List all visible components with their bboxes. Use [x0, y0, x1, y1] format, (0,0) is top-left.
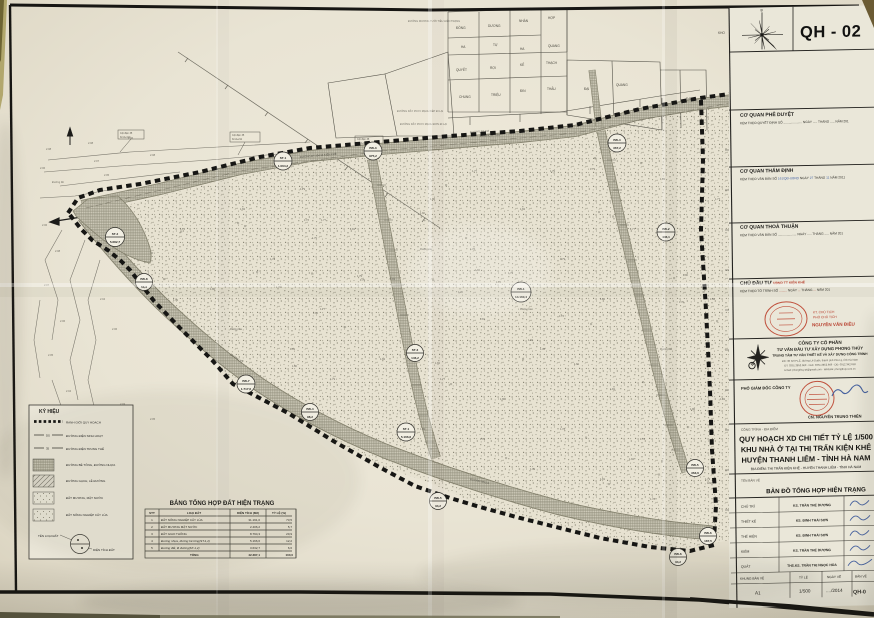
- svg-text:1.79: 1.79: [300, 187, 306, 191]
- svg-text:TỰ: TỰ: [493, 43, 498, 47]
- svg-text:1.81: 1.81: [600, 477, 606, 481]
- svg-text:1.77: 1.77: [630, 227, 636, 231]
- svg-text:363,6: 363,6: [691, 471, 699, 475]
- svg-text:BB-5: BB-5: [691, 463, 698, 467]
- svg-text:1.80: 1.80: [690, 407, 696, 411]
- svg-text:2.06: 2.06: [112, 327, 118, 331]
- svg-text:2.08: 2.08: [46, 147, 52, 151]
- svg-text:1.82: 1.82: [380, 357, 386, 361]
- svg-text:THẤU: THẤU: [547, 87, 556, 91]
- svg-text:ĐỒNG: ĐỒNG: [456, 25, 466, 30]
- svg-text:1.82: 1.82: [720, 397, 726, 401]
- svg-text:THẠCH: THẠCH: [546, 61, 558, 65]
- svg-text:1.77: 1.77: [320, 307, 326, 311]
- svg-text:1.79: 1.79: [173, 299, 178, 302]
- svg-text:1.79: 1.79: [705, 477, 711, 481]
- svg-text:1.83: 1.83: [420, 427, 426, 431]
- svg-text:THIẾT KẾ: THIẾT KẾ: [741, 518, 757, 523]
- svg-text:1.83: 1.83: [390, 277, 396, 281]
- svg-text:ST-3: ST-3: [412, 348, 419, 352]
- svg-text:BB-6: BB-6: [704, 531, 711, 535]
- svg-text:ST-1: ST-1: [280, 156, 287, 160]
- svg-text:QUANG: QUANG: [616, 83, 628, 87]
- svg-text:PHÓ CHỦ TỊCH: PHÓ CHỦ TỊCH: [813, 314, 837, 319]
- svg-text:1.79: 1.79: [560, 257, 566, 261]
- svg-text:1.79: 1.79: [360, 279, 365, 282]
- svg-text:TRIỆU: TRIỆU: [491, 92, 501, 97]
- svg-text:5.166,6: 5.166,6: [401, 435, 412, 439]
- svg-text:2.08: 2.08: [55, 249, 61, 253]
- svg-text:BB-4: BB-4: [306, 407, 313, 411]
- svg-text:146,2: 146,2: [411, 356, 419, 360]
- svg-text:1.79: 1.79: [590, 167, 596, 171]
- svg-text:DƯƠNG: DƯƠNG: [488, 24, 501, 28]
- svg-text:1.78: 1.78: [270, 257, 276, 261]
- svg-text:2.04: 2.04: [66, 389, 72, 393]
- svg-text:2.08: 2.08: [150, 153, 156, 157]
- svg-text:CƠ QUAN THOẢ THUẬN: CƠ QUAN THOẢ THUẬN: [740, 223, 799, 231]
- svg-text:KS. ĐINH THÁI SƠN: KS. ĐINH THÁI SƠN: [796, 532, 829, 538]
- svg-text:975,2: 975,2: [369, 154, 377, 158]
- svg-text:1.79: 1.79: [330, 377, 336, 381]
- svg-text:KHO: KHO: [718, 31, 725, 35]
- svg-text:2.05: 2.05: [48, 353, 54, 357]
- svg-text:1.79: 1.79: [530, 467, 536, 471]
- svg-text:1.81: 1.81: [610, 387, 616, 391]
- svg-text:QUYẾT: QUYẾT: [456, 67, 467, 72]
- svg-text:1.84: 1.84: [629, 458, 634, 461]
- svg-text:Ruộng lúa: Ruộng lúa: [230, 327, 242, 331]
- svg-text:Ruộng lúa: Ruộng lúa: [520, 307, 532, 311]
- svg-text:1.77: 1.77: [321, 219, 326, 222]
- svg-text:1.80: 1.80: [600, 297, 606, 301]
- svg-text:Cột điện 35: Cột điện 35: [232, 134, 245, 137]
- svg-text:1.73: 1.73: [559, 315, 564, 318]
- svg-text:2.04: 2.04: [100, 297, 106, 301]
- svg-text:Đường đê: Đường đê: [52, 180, 64, 184]
- svg-text:KT. CHỦ TỊCH: KT. CHỦ TỊCH: [813, 309, 835, 314]
- svg-text:CƠ QUAN THẨM ĐỊNH: CƠ QUAN THẨM ĐỊNH: [740, 167, 794, 175]
- svg-text:100,0: 100,0: [285, 553, 293, 557]
- svg-text:1.77: 1.77: [715, 197, 721, 201]
- svg-text:367,2: 367,2: [613, 146, 621, 150]
- svg-text:1.80: 1.80: [683, 274, 688, 277]
- svg-text:1.82: 1.82: [420, 212, 425, 215]
- svg-text:2.06: 2.06: [42, 223, 48, 227]
- svg-text:1.77: 1.77: [472, 170, 477, 173]
- svg-text:BB-7: BB-7: [242, 379, 249, 383]
- svg-text:BB-8: BB-8: [140, 277, 147, 281]
- svg-text:1.82: 1.82: [707, 482, 712, 485]
- svg-text:1.82: 1.82: [574, 363, 579, 366]
- svg-text:187,5: 187,5: [704, 539, 712, 543]
- svg-text:NGUYỄN VĂN ĐIỀU: NGUYỄN VĂN ĐIỀU: [812, 321, 856, 328]
- svg-text:CN. NGUYỄN TRUNG THIÊN: CN. NGUYỄN TRUNG THIÊN: [808, 413, 862, 419]
- svg-text:1.79: 1.79: [312, 237, 317, 240]
- svg-text:2.05: 2.05: [104, 173, 110, 177]
- svg-text:CHUNG: CHUNG: [459, 95, 471, 99]
- svg-text:1.78: 1.78: [640, 437, 646, 441]
- svg-text:1.78: 1.78: [560, 427, 566, 431]
- svg-text:1.79: 1.79: [357, 275, 362, 278]
- svg-text:2.07: 2.07: [94, 159, 100, 163]
- svg-text:NHÀN: NHÀN: [519, 19, 529, 23]
- svg-text:RỢI: RỢI: [490, 66, 496, 70]
- svg-text:ĐIN: ĐIN: [520, 89, 526, 93]
- svg-text:2.06: 2.06: [60, 319, 66, 323]
- svg-text:2.06: 2.06: [40, 166, 46, 170]
- svg-text:5.682,7: 5.682,7: [110, 240, 121, 244]
- svg-text:BB-4: BB-4: [613, 138, 620, 142]
- svg-text:PHÓ GIÁM ĐỐC CÔNG TY: PHÓ GIÁM ĐỐC CÔNG TY: [741, 385, 791, 391]
- svg-text:QUANG: QUANG: [548, 44, 560, 48]
- svg-text:KS. TRẦN THẾ DƯƠNG: KS. TRẦN THẾ DƯƠNG: [793, 502, 831, 508]
- svg-text:KS. TRẦN THẾ DƯƠNG: KS. TRẦN THẾ DƯƠNG: [793, 547, 831, 553]
- svg-text:1.81: 1.81: [290, 347, 296, 351]
- svg-text:THỂ HIỆN: THỂ HIỆN: [741, 533, 757, 538]
- svg-text:1.717,6: 1.717,6: [241, 387, 252, 391]
- svg-text:CÔNG TRÌNH - ĐỊA ĐIỂM: CÔNG TRÌNH - ĐỊA ĐIỂM: [741, 426, 778, 432]
- svg-text:1.81: 1.81: [480, 317, 486, 321]
- svg-text:Cột điện 35: Cột điện 35: [357, 138, 370, 141]
- svg-text:QH - 02: QH - 02: [800, 22, 861, 41]
- svg-text:KS. ĐINH THÁI SƠN: KS. ĐINH THÁI SƠN: [796, 517, 829, 523]
- svg-text:Km2+410: Km2+410: [120, 136, 131, 139]
- svg-text:1.84: 1.84: [528, 339, 533, 342]
- svg-text:KẾ: KẾ: [520, 62, 524, 67]
- svg-text:HỢP: HỢP: [548, 16, 555, 20]
- svg-text:CHỦ TRÌ: CHỦ TRÌ: [741, 504, 755, 509]
- svg-text:1.82: 1.82: [240, 207, 246, 211]
- svg-text:BB-3: BB-3: [369, 146, 376, 150]
- svg-text:1.064,2: 1.064,2: [278, 164, 289, 168]
- svg-text:1.81: 1.81: [350, 227, 356, 231]
- svg-text:ĐẠI: ĐẠI: [584, 87, 589, 91]
- svg-text:ST-1: ST-1: [403, 427, 410, 431]
- svg-text:1.76: 1.76: [480, 437, 486, 441]
- svg-text:2.08: 2.08: [88, 141, 94, 145]
- svg-text:1.82: 1.82: [520, 207, 526, 211]
- svg-text:1.80: 1.80: [500, 397, 506, 401]
- svg-text:1.79: 1.79: [550, 170, 555, 173]
- svg-text:1.76: 1.76: [313, 312, 318, 315]
- svg-text:1.78: 1.78: [540, 347, 546, 351]
- svg-text:1.78: 1.78: [650, 497, 656, 501]
- svg-text:Cột điện 35: Cột điện 35: [120, 132, 133, 135]
- svg-text:1.80: 1.80: [292, 365, 297, 368]
- svg-text:ST-2: ST-2: [112, 232, 119, 236]
- svg-text:1.73: 1.73: [304, 219, 309, 222]
- svg-text:1.76: 1.76: [679, 301, 684, 304]
- svg-text:TÊN BẢN VẼ: TÊN BẢN VẼ: [741, 477, 760, 482]
- svg-text:1.80: 1.80: [710, 297, 716, 301]
- svg-text:Km2+211: Km2+211: [232, 138, 243, 141]
